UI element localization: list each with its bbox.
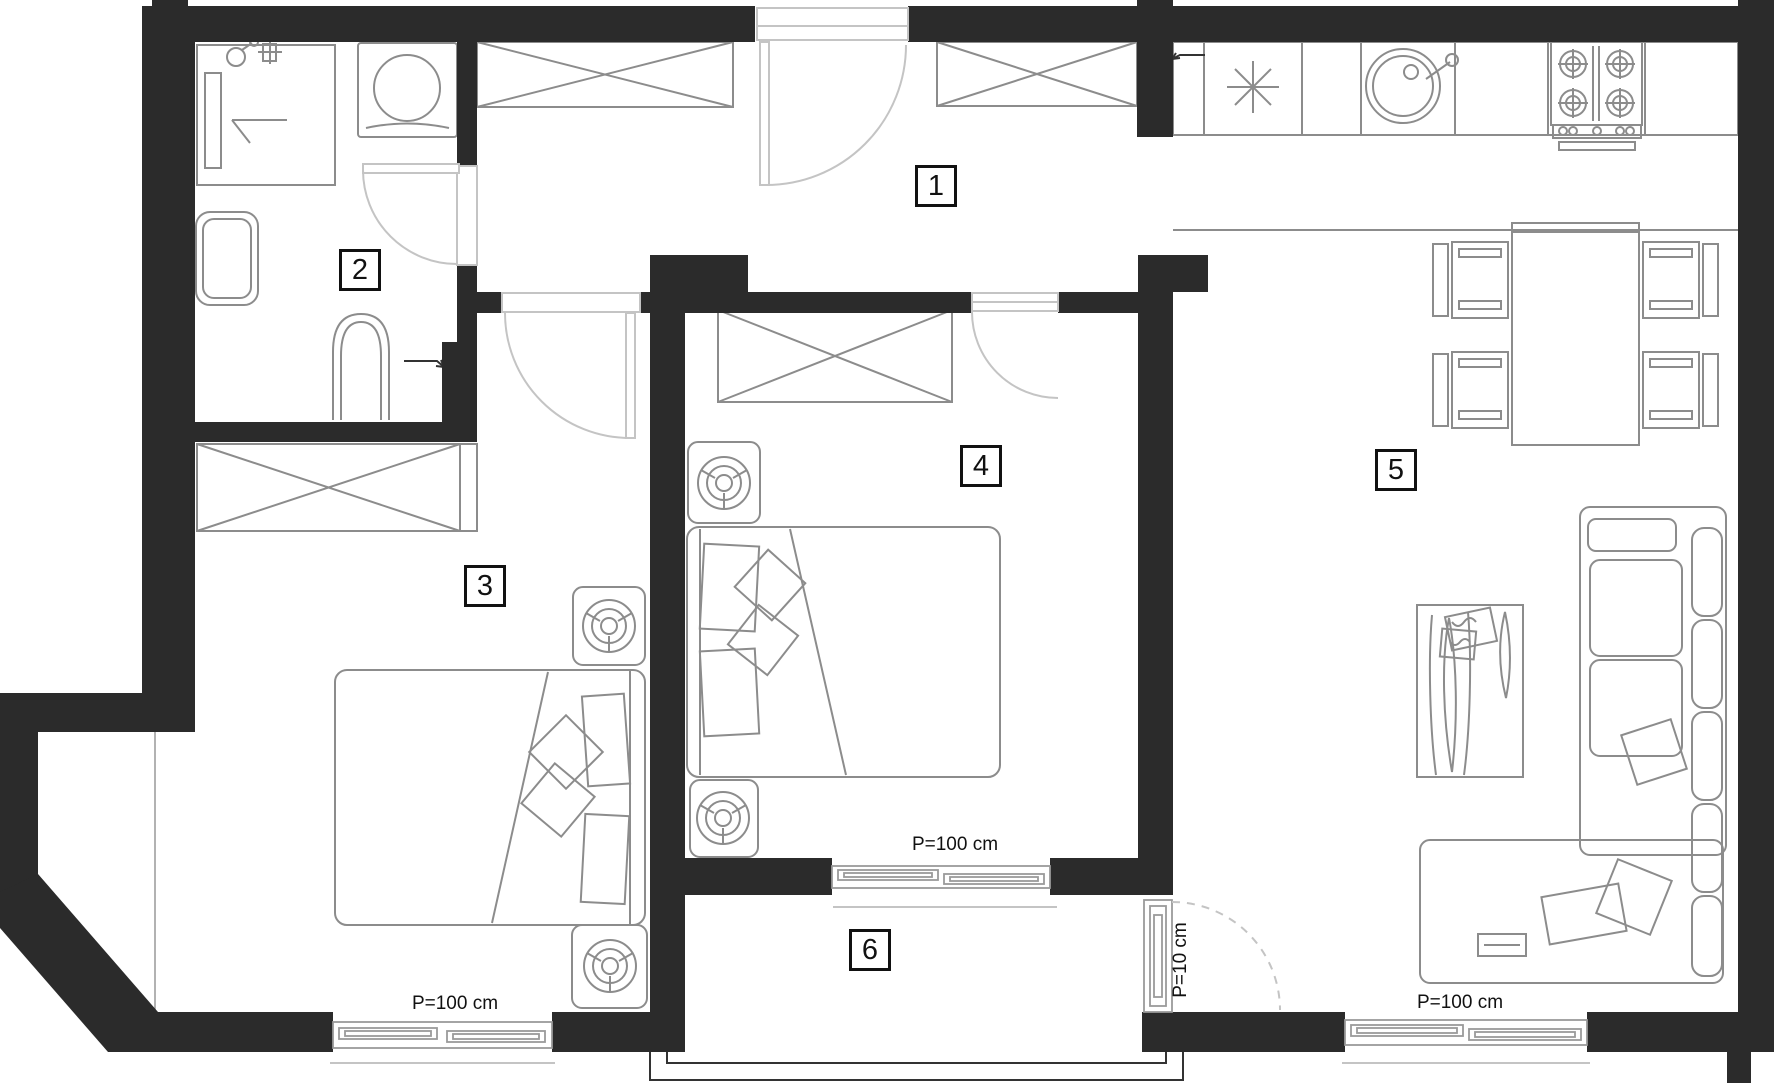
wall-segment	[650, 292, 685, 1052]
shower	[197, 45, 335, 185]
room-label-4: 4	[960, 445, 1002, 487]
tv-cabinet	[1417, 605, 1523, 777]
window-size-label: P=100 cm	[412, 993, 498, 1014]
room-label-2: 2	[339, 249, 381, 291]
entrance-door	[757, 8, 908, 185]
wall-segment	[155, 1012, 333, 1052]
wall-segment	[650, 255, 748, 292]
wall-segment	[0, 693, 142, 732]
wall-segment	[1058, 292, 1138, 313]
bedroom3-wardrobe	[197, 444, 477, 531]
direction-arrow-icon	[1172, 53, 1205, 59]
wall-segment	[457, 263, 477, 342]
room-number: 5	[1388, 456, 1404, 485]
hob-symbol-icon	[1227, 61, 1279, 113]
wall-segment	[1727, 1012, 1774, 1052]
room-number: 6	[862, 936, 878, 965]
wall-segment	[142, 6, 755, 42]
bedroom4-door	[972, 293, 1058, 398]
window	[330, 1022, 555, 1063]
bedroom4-bed	[687, 527, 1000, 777]
window	[832, 866, 1057, 907]
room-label-3: 3	[464, 565, 506, 607]
wall-segment	[1138, 255, 1208, 292]
wall-segment	[457, 42, 477, 168]
nightstand	[572, 925, 647, 1008]
room-number: 4	[973, 452, 989, 481]
shower-faucet-icon	[227, 38, 282, 66]
wall-segment	[1738, 0, 1774, 1052]
nightstand	[690, 780, 758, 857]
hall-wardrobe-right	[937, 42, 1137, 106]
hall-wardrobe-left	[477, 42, 733, 107]
dining-chair	[1643, 352, 1718, 428]
room-label-6: 6	[849, 929, 891, 971]
window-size-label: P=100 cm	[912, 834, 998, 855]
kitchen-sink	[1366, 49, 1458, 123]
wall-segment	[142, 6, 195, 732]
balcony-parapet	[650, 1052, 1183, 1080]
room-number: 2	[352, 256, 368, 285]
direction-arrow-icon	[404, 360, 444, 367]
nightstand	[688, 442, 760, 523]
wall-segment	[1050, 858, 1143, 895]
toilet	[333, 314, 389, 420]
wall-segment	[908, 6, 1774, 42]
washing-machine	[358, 43, 457, 137]
wall-segment	[1142, 1012, 1345, 1052]
balcony-door-size-label: P=10 cm	[1170, 922, 1191, 998]
floor-plan: P=100 cm P=100 cm P=100 cm P=10 cm 1 2 3…	[0, 0, 1774, 1088]
stove	[1551, 42, 1642, 150]
walls	[0, 0, 1774, 1083]
wall-segment	[0, 732, 38, 892]
corner-sofa	[1420, 507, 1726, 983]
floor-plan-drawing: P=100 cm P=100 cm P=100 cm P=10 cm	[0, 0, 1774, 1088]
bedroom3-bed	[335, 670, 645, 925]
wall-segment	[640, 292, 972, 313]
wall-segment	[1587, 1012, 1727, 1052]
dining-chair	[1433, 352, 1508, 428]
dining-chair	[1643, 242, 1718, 318]
room-number: 1	[928, 172, 944, 201]
window-size-label: P=100 cm	[1417, 992, 1503, 1013]
wall-segment	[0, 874, 158, 1052]
wall-segment	[1137, 0, 1173, 137]
dining-table	[1512, 223, 1639, 445]
window	[1342, 1020, 1590, 1063]
wall-segment	[1138, 292, 1173, 895]
wall-segment	[195, 422, 477, 442]
wall-segment	[477, 292, 502, 313]
balcony-door	[1144, 900, 1280, 1012]
room-number: 3	[477, 572, 493, 601]
room-label-5: 5	[1375, 449, 1417, 491]
wall-segment	[1727, 1052, 1751, 1083]
dining-chair	[1433, 242, 1508, 318]
wall-segment	[685, 858, 832, 895]
bedroom3-door	[502, 293, 640, 438]
nightstand	[573, 587, 645, 665]
room-label-1: 1	[915, 165, 957, 207]
bedroom4-wardrobe	[718, 310, 952, 402]
bathroom-sink	[196, 212, 258, 305]
